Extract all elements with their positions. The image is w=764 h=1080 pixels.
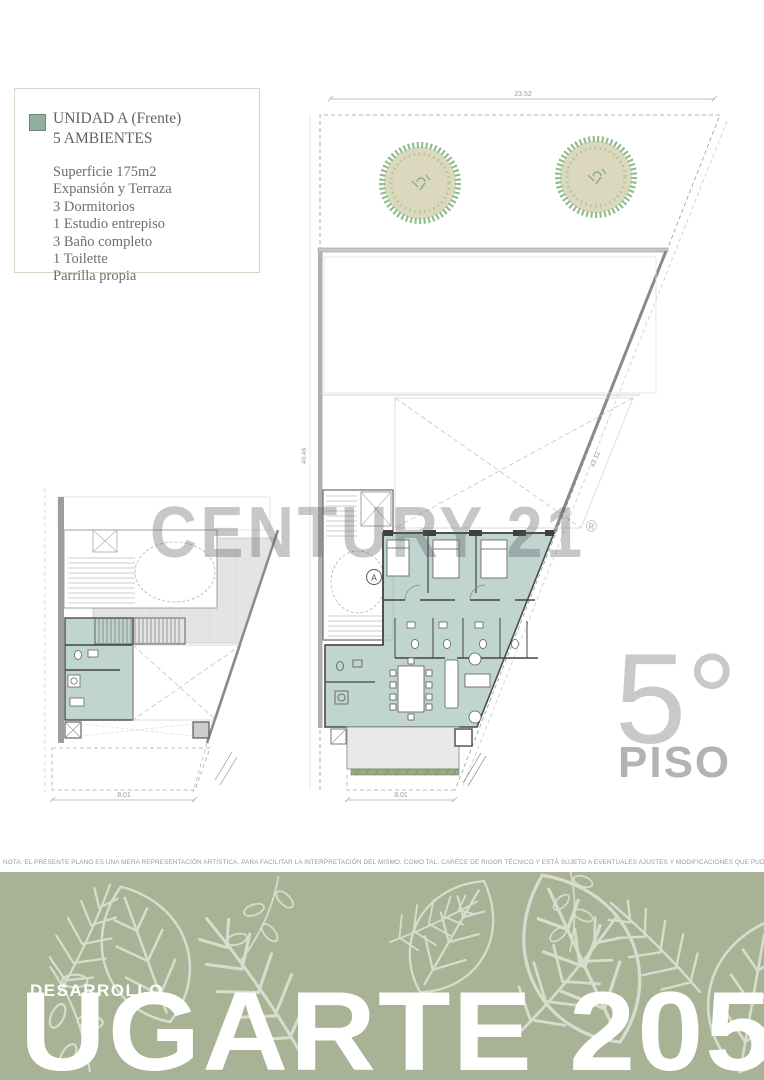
detail-expansion: Expansión y Terraza bbox=[53, 181, 172, 198]
unit-color-swatch bbox=[29, 114, 46, 131]
century21-watermark: CENTURY 21® bbox=[150, 497, 597, 569]
floor-word: PISO bbox=[618, 741, 731, 785]
dimension-bottom: 8.01 bbox=[345, 792, 457, 802]
dimension-diagonal: 43.12 bbox=[589, 450, 602, 468]
detail-dormitorios: 3 Dormitorios bbox=[53, 199, 172, 216]
party-wall bbox=[58, 497, 64, 743]
dimension-top: 23.52 bbox=[328, 91, 717, 101]
unit-details: Superficie 175m2 Expansión y Terraza 3 D… bbox=[53, 164, 172, 286]
svg-text:40.46: 40.46 bbox=[301, 447, 308, 464]
detail-superficie: Superficie 175m2 bbox=[53, 164, 172, 181]
unit-legend: UNIDAD A (Frente) 5 AMBIENTES Superficie… bbox=[14, 88, 260, 273]
svg-text:A: A bbox=[371, 573, 377, 583]
balcony bbox=[331, 727, 486, 790]
svg-text:8.01: 8.01 bbox=[117, 792, 131, 799]
detail-banos: 3 Baño completo bbox=[53, 234, 172, 251]
stair-treads bbox=[99, 619, 179, 643]
registered-mark: ® bbox=[586, 517, 597, 536]
dimension-bottom: 8.01 bbox=[50, 792, 197, 802]
dimension-left: 40.46 bbox=[301, 115, 310, 790]
project-banner: DESARROLLO UGARTE 2055 bbox=[0, 872, 764, 1080]
disclaimer-note: NOTA: EL PRESENTE PLANO ES UNA MERA REPR… bbox=[3, 859, 764, 866]
balcony-outline bbox=[52, 748, 237, 790]
detail-toilette: 1 Toilette bbox=[53, 251, 172, 268]
detail-estudio: 1 Estudio entrepiso bbox=[53, 216, 172, 233]
tree-icon bbox=[558, 139, 634, 215]
estudio-area bbox=[65, 618, 185, 720]
svg-text:23.52: 23.52 bbox=[514, 91, 532, 98]
unit-name: UNIDAD A (Frente) bbox=[53, 109, 181, 129]
svg-text:8.01: 8.01 bbox=[394, 792, 408, 799]
banner-title: UGARTE 2055 bbox=[20, 976, 764, 1080]
unit-rooms: 5 AMBIENTES bbox=[53, 129, 181, 149]
tree-icon bbox=[382, 145, 458, 221]
floorplan-page: UNIDAD A (Frente) 5 AMBIENTES Superficie… bbox=[0, 0, 764, 1080]
void-cross bbox=[133, 645, 241, 720]
detail-parrilla: Parrilla propia bbox=[53, 268, 172, 285]
columns bbox=[65, 722, 209, 738]
unit-title: UNIDAD A (Frente) 5 AMBIENTES bbox=[53, 109, 181, 149]
